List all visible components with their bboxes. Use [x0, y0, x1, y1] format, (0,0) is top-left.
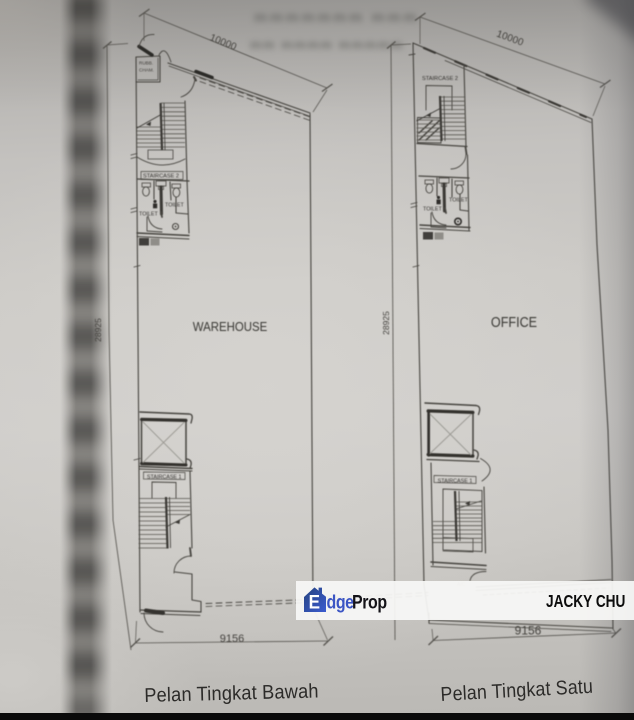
svg-text:OFFICE: OFFICE [491, 313, 537, 330]
svg-text:STAIRCASE 2: STAIRCASE 2 [143, 174, 179, 180]
svg-text:dge: dge [327, 591, 355, 613]
svg-text:STAIRCASE 1: STAIRCASE 1 [147, 474, 182, 480]
svg-text:9156: 9156 [515, 624, 542, 638]
svg-text:E: E [309, 592, 320, 613]
svg-text:WAREHOUSE: WAREHOUSE [193, 319, 268, 334]
svg-text:STAIRCASE 1: STAIRCASE 1 [438, 478, 473, 484]
svg-text:9156: 9156 [220, 633, 244, 645]
svg-text:RUBB.: RUBB. [139, 61, 153, 66]
svg-text:28925: 28925 [381, 311, 391, 335]
svg-text:TOILET: TOILET [449, 198, 468, 204]
svg-text:28925: 28925 [93, 318, 103, 342]
svg-text:Prop: Prop [352, 591, 387, 613]
svg-text:TOILET: TOILET [139, 212, 158, 218]
svg-text:CHAM.: CHAM. [139, 68, 154, 73]
svg-text:TOILET: TOILET [165, 203, 184, 209]
svg-text:STAIRCASE 2: STAIRCASE 2 [422, 76, 458, 82]
svg-text:10000: 10000 [208, 32, 238, 53]
svg-text:TOILET: TOILET [423, 207, 442, 213]
